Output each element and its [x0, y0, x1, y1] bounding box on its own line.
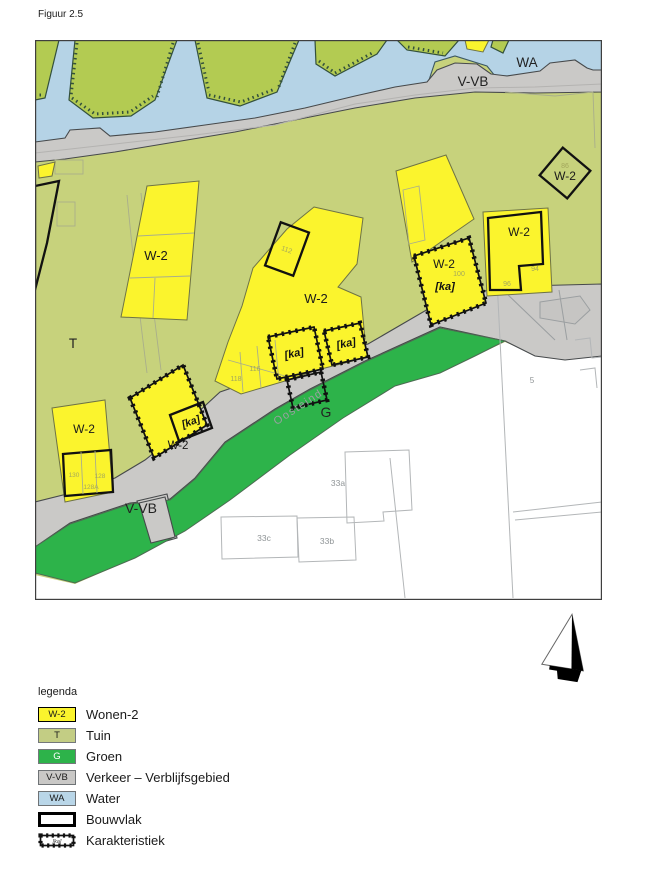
- water-swatch: WA: [38, 791, 76, 806]
- w2-label: W-2: [168, 440, 189, 452]
- w2-label: W-2: [144, 248, 168, 263]
- house-number-33a: 33a: [331, 478, 345, 488]
- bouwvlak-swatch: [38, 812, 76, 827]
- legend-label: Wonen-2: [86, 707, 139, 722]
- verkeer-swatch: V-VB: [38, 770, 76, 785]
- vvb-label-bottom: V-VB: [125, 500, 157, 516]
- house-number-130: 130: [69, 472, 80, 479]
- legend-item-karakteristiek: [ka] Karakteristiek: [38, 833, 230, 848]
- tuin-swatch: T: [38, 728, 76, 743]
- karakteristiek-swatch: [ka]: [38, 833, 76, 848]
- house-number-33b: 33b: [320, 536, 334, 546]
- w2-label: W-2: [554, 169, 576, 183]
- groen-swatch: G: [38, 749, 76, 764]
- legend: legenda W-2 Wonen-2 T Tuin G Groen V-VB …: [38, 686, 230, 854]
- water-label: WA: [516, 55, 537, 70]
- legend-label: Tuin: [86, 728, 111, 743]
- w2-label: W-2: [304, 291, 328, 306]
- house-number-128a: 128A: [83, 484, 99, 491]
- legend-item-bouwvlak: Bouwvlak: [38, 812, 230, 827]
- legend-label: Bouwvlak: [86, 812, 142, 827]
- legend-label: Karakteristiek: [86, 833, 165, 848]
- legend-label: Verkeer – Verblijfsgebied: [86, 770, 230, 785]
- house-number-33c: 33c: [257, 533, 271, 543]
- w2-label: W-2: [433, 257, 455, 271]
- house-number-118: 118: [230, 376, 241, 383]
- karakteristiek-swatch-text: [ka]: [52, 839, 62, 845]
- w2-label: W-2: [508, 225, 530, 239]
- groen-label: G: [321, 404, 332, 420]
- house-number-116: 116: [249, 366, 260, 373]
- legend-item-wonen2: W-2 Wonen-2: [38, 707, 230, 722]
- legend-item-verkeer: V-VB Verkeer – Verblijfsgebied: [38, 770, 230, 785]
- w2-label: W-2: [73, 422, 95, 436]
- house-number-128: 128: [95, 473, 106, 480]
- legend-item-water: WA Water: [38, 791, 230, 806]
- legend-label: Groen: [86, 749, 122, 764]
- legend-item-tuin: T Tuin: [38, 728, 230, 743]
- house-number-100: 100: [453, 271, 465, 278]
- tuin-label: T: [69, 336, 77, 351]
- legend-title: legenda: [38, 686, 230, 698]
- vvb-label-top: V-VB: [458, 74, 489, 89]
- legend-label: Water: [86, 791, 120, 806]
- wonen2-swatch: W-2: [38, 707, 76, 722]
- zoning-map-canvas: WA V-VB T G V-VB Oosteind W-2 W-2 W-2 [k…: [35, 40, 602, 600]
- figure-title: Figuur 2.5: [38, 9, 83, 20]
- ka-label: [ka]: [434, 281, 455, 293]
- zoning-map: WA V-VB T G V-VB Oosteind W-2 W-2 W-2 [k…: [35, 40, 602, 600]
- house-number-96: 96: [503, 281, 511, 288]
- house-number-94: 94: [531, 266, 539, 273]
- legend-item-groen: G Groen: [38, 749, 230, 764]
- house-number-5: 5: [530, 376, 535, 385]
- north-arrow-icon: [533, 606, 603, 684]
